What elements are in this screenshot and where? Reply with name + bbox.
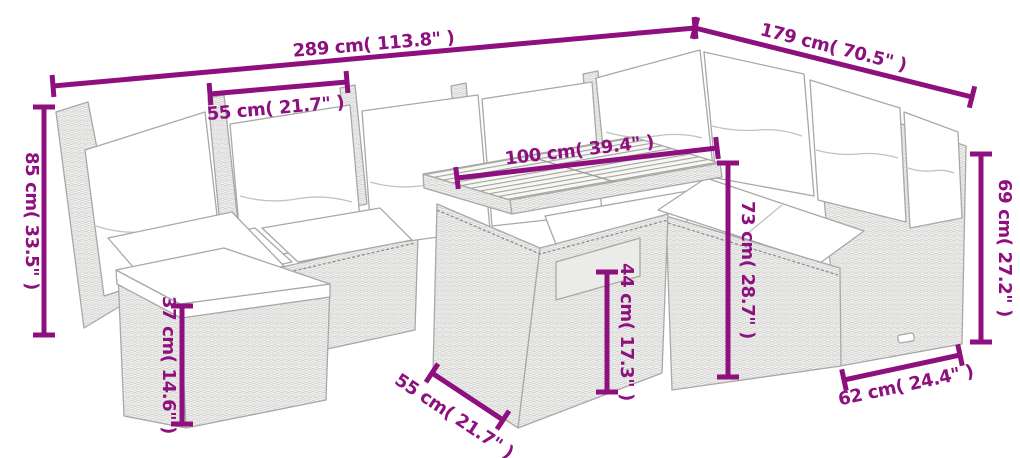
dimension-back-height: 69 cm( 27.2" ) [970, 154, 1015, 342]
dimension-total-height: 85 cm( 33.5" ) [21, 107, 55, 335]
back-cushion [810, 80, 906, 222]
dimension-corner-height-label: 73 cm( 28.7" ) [737, 201, 758, 339]
dimension-diagram-canvas: 289 cm( 113.8" ) 179 cm( 70.5" ) 55 cm( … [0, 0, 1020, 458]
product-dimension-diagram: 289 cm( 113.8" ) 179 cm( 70.5" ) 55 cm( … [0, 0, 1020, 458]
dimension-ottoman-height-label: 37 cm( 14.6" ) [158, 296, 179, 434]
dimension-back-height-label: 69 cm( 27.2" ) [994, 179, 1015, 317]
dimension-table-height-label: 44 cm( 17.3" ) [616, 263, 637, 401]
dimension-total-height-label: 85 cm( 33.5" ) [21, 152, 42, 290]
sofa-illustration [56, 50, 966, 428]
table-pedestal-right-face [518, 214, 668, 428]
